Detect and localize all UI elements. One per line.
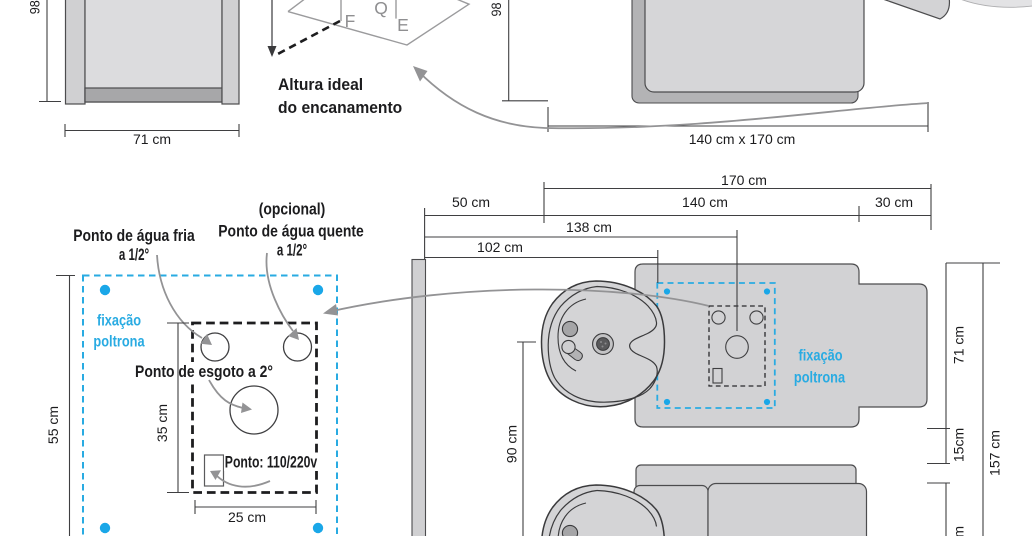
svg-text:Ponto: 110/220v: Ponto: 110/220v	[225, 454, 318, 472]
svg-text:15cm: 15cm	[951, 428, 967, 462]
svg-text:71 cm: 71 cm	[133, 131, 171, 147]
svg-text:55 cm: 55 cm	[45, 406, 61, 444]
svg-text:poltrona: poltrona	[794, 369, 846, 387]
svg-text:102 cm: 102 cm	[477, 239, 523, 255]
svg-text:71 cm: 71 cm	[951, 326, 967, 364]
svg-text:poltrona: poltrona	[93, 333, 145, 351]
svg-text:157 cm: 157 cm	[987, 430, 1003, 476]
svg-text:Q: Q	[374, 0, 388, 18]
svg-text:140 cm: 140 cm	[682, 194, 728, 210]
svg-text:98: 98	[488, 3, 504, 17]
svg-text:140 cm x 170 cm: 140 cm x 170 cm	[689, 131, 796, 147]
svg-text:a 1/2°: a 1/2°	[119, 246, 149, 265]
svg-text:Ponto de água fria: Ponto de água fria	[73, 227, 195, 246]
svg-text:71 cm: 71 cm	[951, 526, 967, 536]
svg-text:25 cm: 25 cm	[228, 509, 266, 525]
svg-text:E: E	[397, 15, 409, 35]
svg-text:35 cm: 35 cm	[154, 404, 170, 442]
svg-text:a 1/2°: a 1/2°	[277, 241, 307, 260]
svg-text:90 cm: 90 cm	[504, 425, 520, 463]
svg-text:138 cm: 138 cm	[566, 219, 612, 235]
svg-text:Altura ideal: Altura ideal	[278, 75, 363, 94]
svg-text:30 cm: 30 cm	[875, 194, 913, 210]
svg-text:98: 98	[27, 0, 43, 14]
svg-text:50 cm: 50 cm	[452, 194, 490, 210]
svg-text:fixação: fixação	[798, 347, 842, 365]
svg-text:Ponto de água quente: Ponto de água quente	[218, 222, 364, 241]
svg-text:(opcional): (opcional)	[259, 200, 326, 219]
svg-text:F: F	[345, 11, 356, 31]
svg-text:do encanamento: do encanamento	[278, 98, 402, 117]
svg-text:170 cm: 170 cm	[721, 172, 767, 188]
svg-text:Ponto de esgoto a 2°: Ponto de esgoto a 2°	[135, 363, 273, 382]
svg-text:fixação: fixação	[97, 312, 141, 330]
